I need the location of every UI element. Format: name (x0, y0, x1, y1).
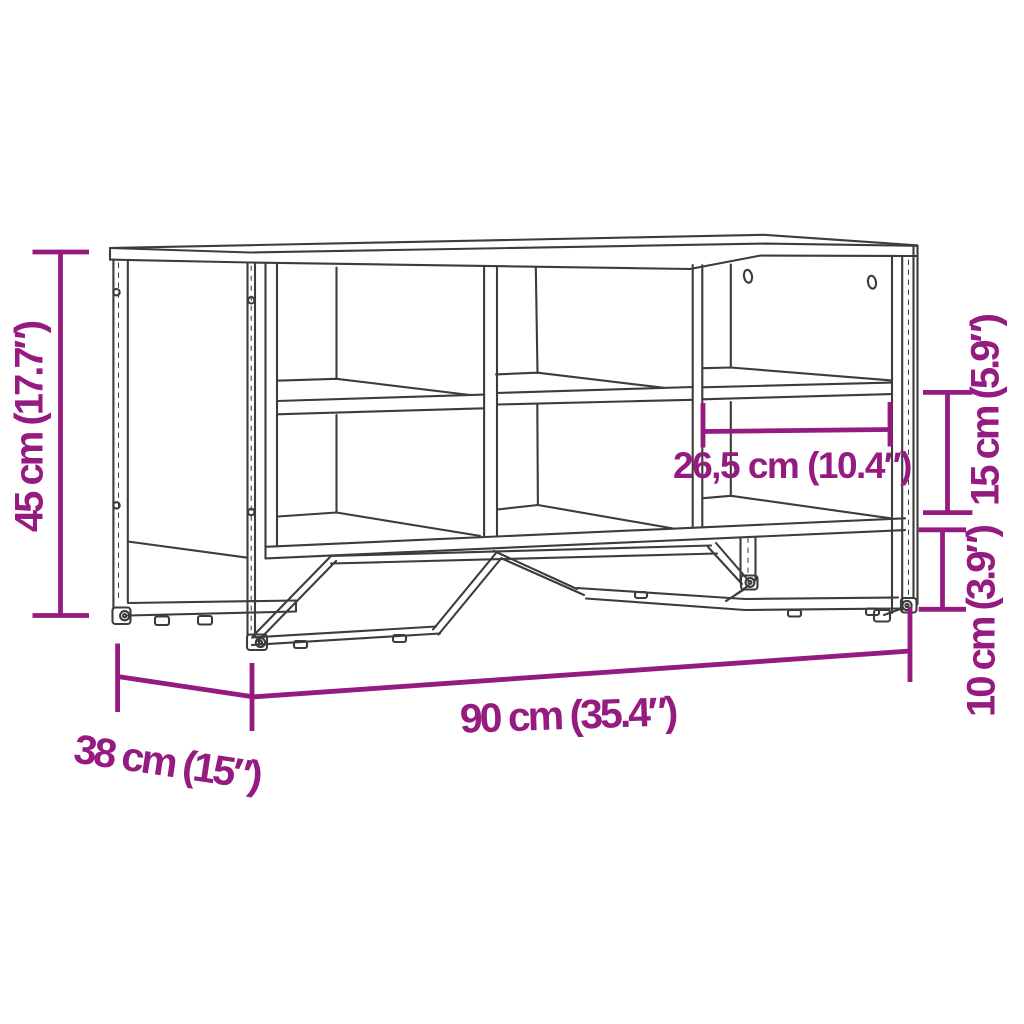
svg-text:26,5 cm (10.4″): 26,5 cm (10.4″) (673, 445, 911, 486)
svg-text:15 cm (5.9″): 15 cm (5.9″) (964, 314, 1008, 506)
svg-text:45 cm (17.7″): 45 cm (17.7″) (8, 321, 52, 532)
svg-text:90 cm (35.4″): 90 cm (35.4″) (459, 688, 677, 742)
svg-text:10 cm (3.9″): 10 cm (3.9″) (960, 525, 1004, 717)
